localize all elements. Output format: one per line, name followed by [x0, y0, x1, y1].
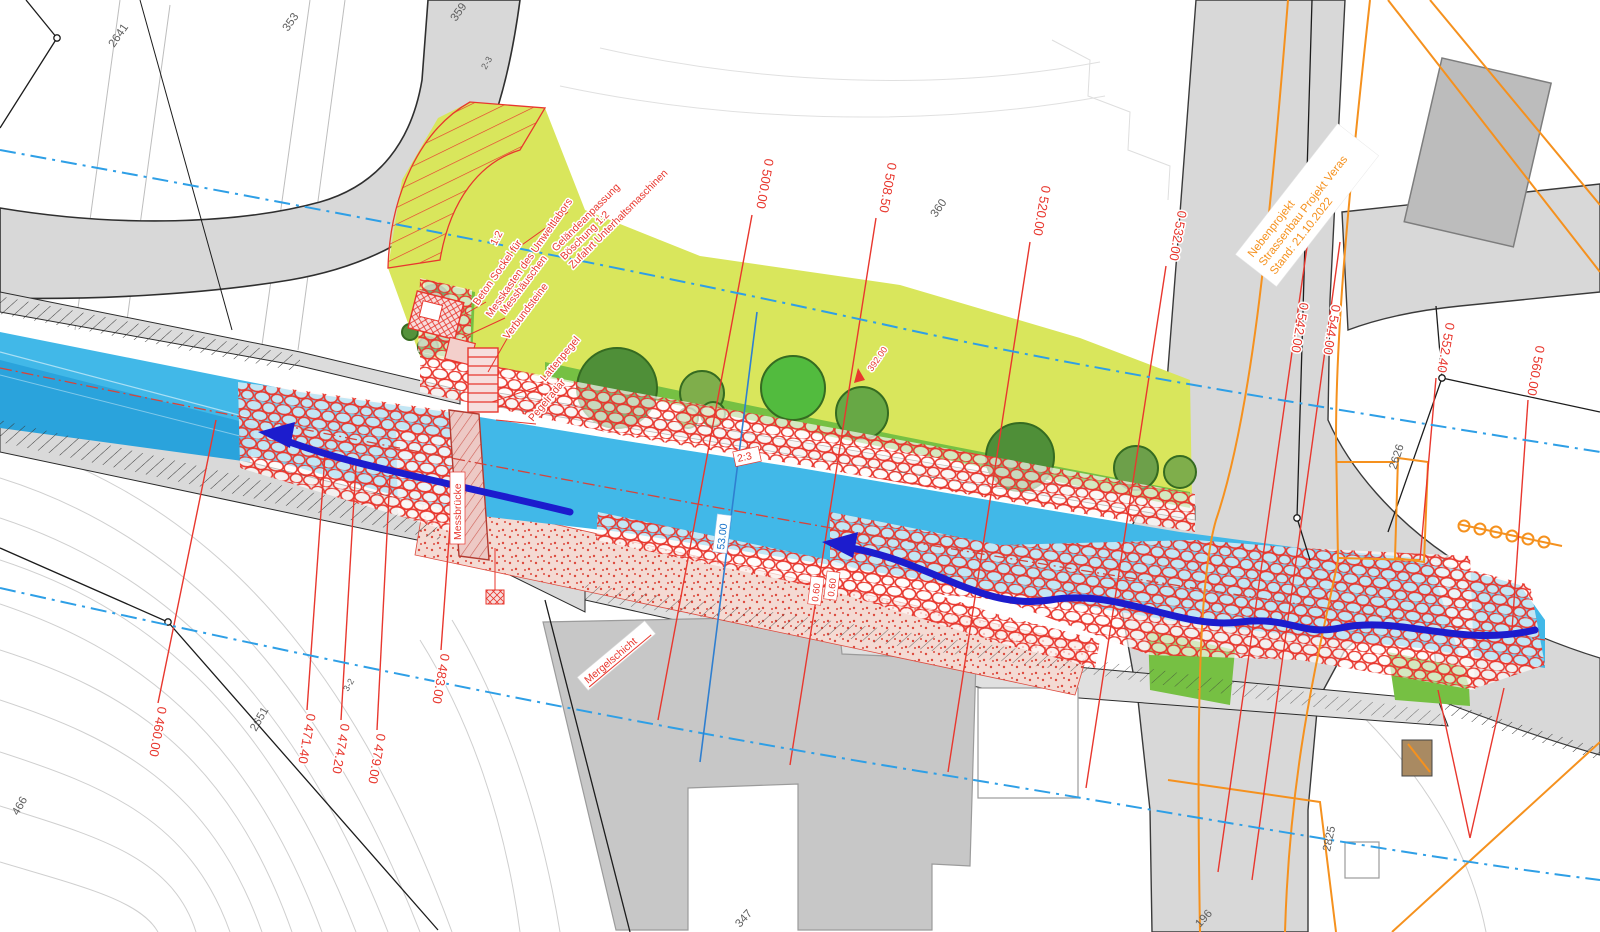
parcel-label-2651: 2651 [248, 705, 271, 733]
gauge-ladder [468, 348, 498, 412]
station-label-474: 0 474.20 [329, 722, 353, 774]
station-label-471: 0 471.40 [295, 712, 319, 764]
annotation-messbruecke: Messbrücke [452, 483, 464, 540]
building-outline-white [978, 688, 1078, 798]
station-label-479: 0 479.00 [365, 732, 389, 784]
site-plan[interactable]: 0 460.00 0 471.40 0 474.20 0 479.00 0 48… [0, 0, 1600, 932]
red-detail-box [486, 590, 504, 604]
parcel-label-353: 353 [281, 11, 302, 34]
annotation-dim-060-b: 0.60 [826, 578, 839, 598]
station-label-500: 0 500.00 [753, 157, 777, 209]
station-label-483: 0 483.00 [429, 652, 453, 704]
station-label-560: 0 560.00 [1524, 344, 1548, 396]
station-label-460: 0 460.00 [146, 705, 170, 757]
station-label-508: 0 508.50 [876, 161, 900, 213]
station-label-520: 0 520.00 [1030, 184, 1054, 236]
tree [1164, 456, 1196, 488]
parcel-label-360: 360 [929, 197, 950, 220]
annotation-dim-060-a: 0.60 [810, 583, 823, 603]
parcel-label-2626: 2626 [1387, 443, 1406, 471]
tree [761, 356, 825, 420]
parcel-label-2641: 2641 [107, 22, 132, 50]
building-small-dark [1402, 740, 1432, 776]
parcel-label-347: 347 [733, 908, 755, 930]
